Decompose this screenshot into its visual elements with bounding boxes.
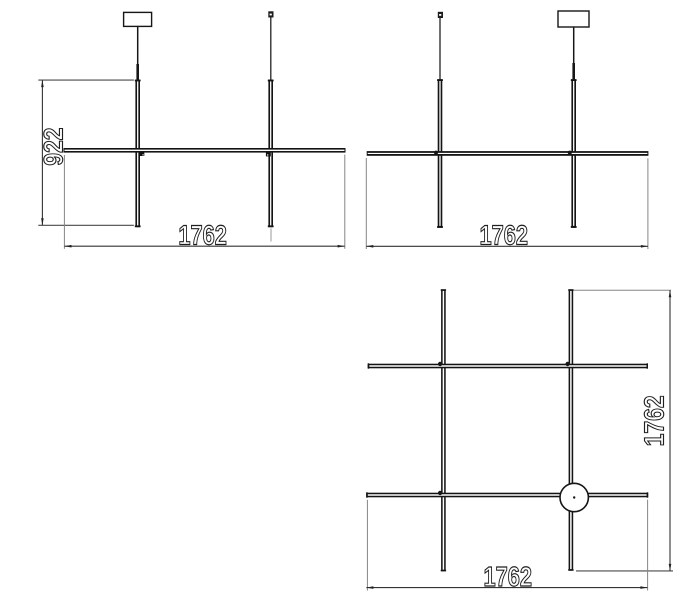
svg-text:1762: 1762: [484, 561, 533, 592]
svg-text:922: 922: [38, 128, 68, 166]
svg-text:1762: 1762: [638, 395, 669, 446]
svg-text:1762: 1762: [178, 219, 227, 250]
svg-text:1762: 1762: [480, 220, 529, 251]
